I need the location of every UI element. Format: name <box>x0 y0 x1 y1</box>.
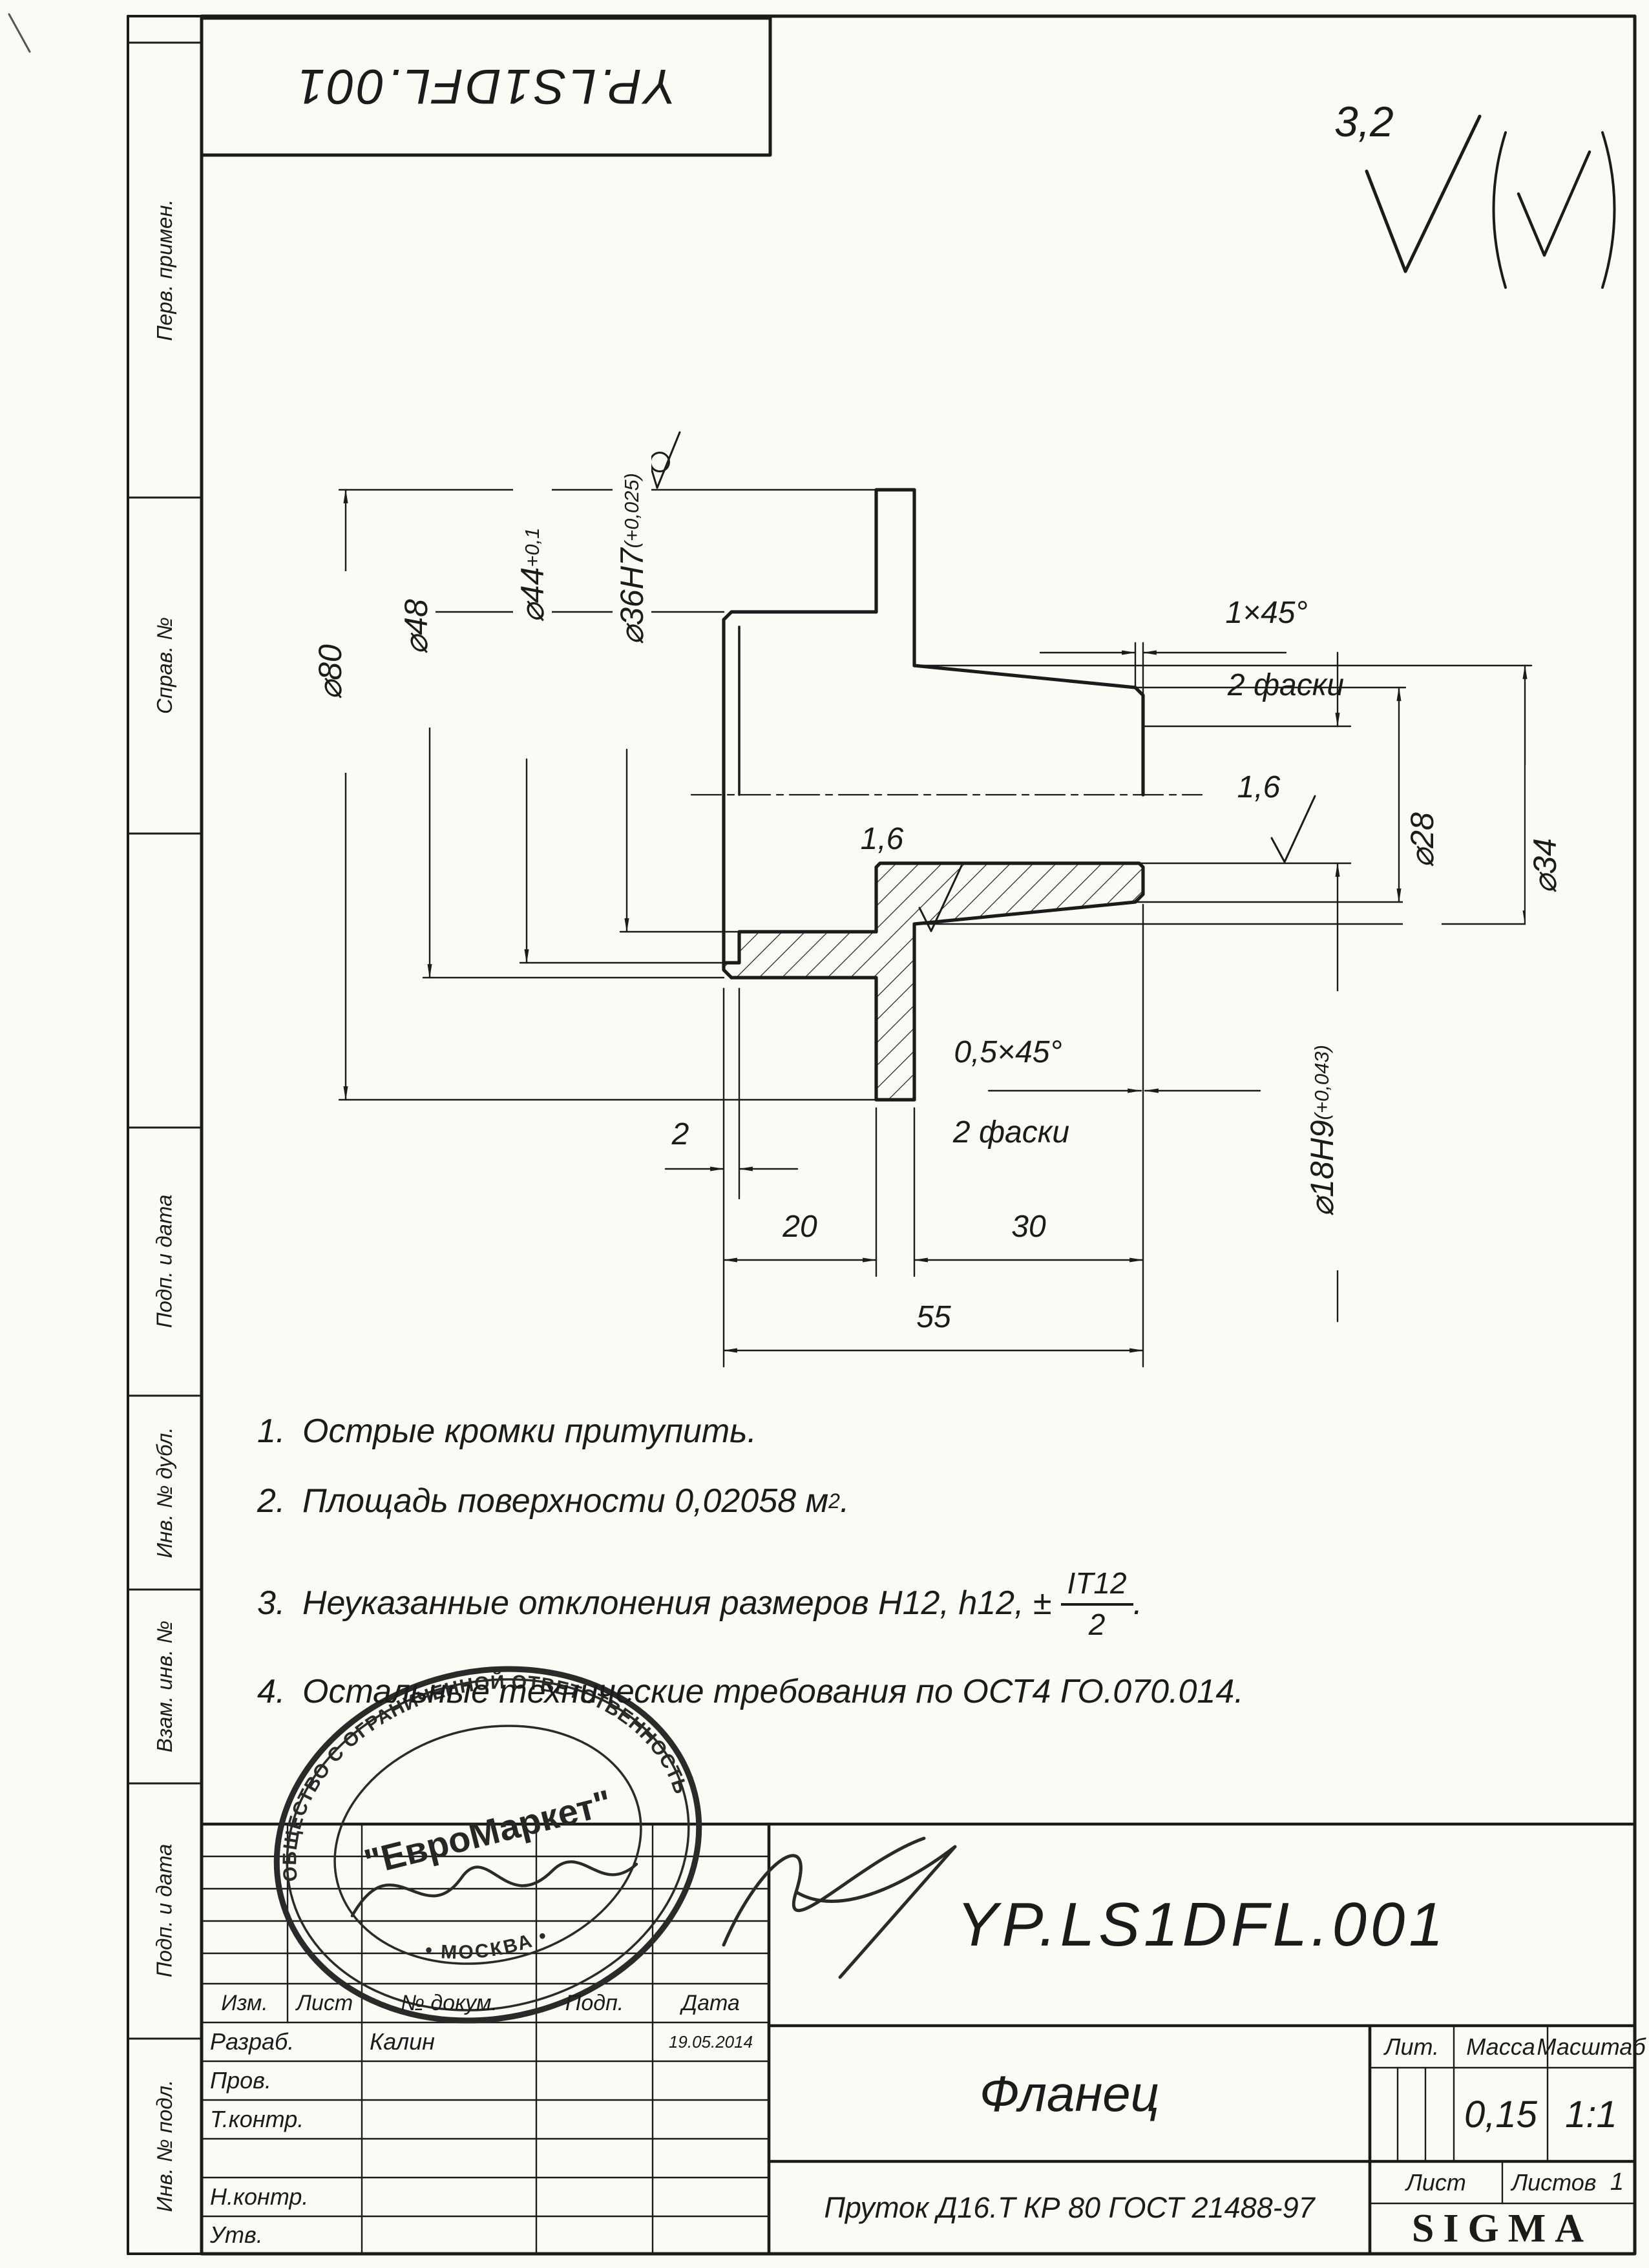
titleblock-lit-label: Лит. <box>1370 2026 1454 2068</box>
tech-req-3: 3. Неуказанные отклонения размеров H12, … <box>257 1567 1549 1639</box>
fraction-denominator: 2 <box>1089 1606 1106 1639</box>
tech-req-2-number: 2. <box>257 1482 302 1520</box>
tech-req-1-text: Острые кромки притупить. <box>302 1412 757 1451</box>
dim-len20: 20 <box>751 1207 848 1246</box>
dim-d44-tolerance: +0,1 <box>521 528 544 567</box>
titleblock-material: Пруток Д16.Т КР 80 ГОСТ 21488-97 <box>769 2161 1370 2254</box>
dim-d44: ⌀44+0,1 <box>513 474 552 676</box>
dim-d28-text: ⌀28 <box>1403 812 1441 868</box>
general-roughness-value: 3,2 <box>1334 97 1394 146</box>
tech-req-2: 2. Площадь поверхности 0,02058 м2. <box>257 1482 1549 1520</box>
titleblock-col-podp: Подп. <box>536 1984 653 2022</box>
dim-len2: 2 <box>648 1115 713 1153</box>
dim-chamfer-outer: 1×45° <box>1170 593 1363 632</box>
dim-d36: ⌀36H7(+0,025) <box>613 432 651 686</box>
titleblock-razrab-date: 19.05.2014 <box>653 2022 769 2061</box>
margin-label-perv-primen: Перв. примен. <box>128 44 202 496</box>
tech-req-2-text: Площадь поверхности 0,02058 м <box>302 1482 828 1520</box>
dim-chamfer-hole: 0,5×45° <box>911 1033 1105 1071</box>
titleblock-row-utv: Утв. <box>210 2216 362 2254</box>
titleblock-company: SIGMA <box>1370 2203 1635 2254</box>
dim-len30: 30 <box>980 1207 1077 1246</box>
tech-req-1: 1. Острые кромки притупить. <box>257 1412 1549 1451</box>
general-roughness-icons <box>1367 116 1615 288</box>
titleblock-row-nkontr: Н.контр. <box>210 2178 362 2216</box>
tech-req-3-text: Неуказанные отклонения размеров H12, h12… <box>302 1584 1052 1622</box>
dim-d48: ⌀48 <box>397 526 436 728</box>
titleblock-scale-label: Масштаб <box>1548 2026 1635 2068</box>
scan-artifact-mark <box>9 14 30 52</box>
titleblock-sheets-value: 1 <box>1599 2161 1635 2203</box>
designation-flipped: YP.LS1DFL.001 <box>208 25 764 149</box>
titleblock-part-name: Фланец <box>769 2026 1370 2161</box>
dim-d48-text: ⌀48 <box>397 599 435 655</box>
roughness-bore-value: 1,6 <box>843 819 921 858</box>
tech-req-3-period: . <box>1133 1584 1142 1622</box>
dim-d18-text: ⌀18H9 <box>1303 1120 1341 1217</box>
titleblock-sheets-label: Листов <box>1509 2161 1599 2203</box>
flange-outline <box>724 490 1143 1100</box>
drawing-sheet: ОБЩЕСТВО С ОГРАНИЧЕННОЙ ОТВЕТСТВЕННОСТЬЮ… <box>0 0 1649 2268</box>
tech-req-4-text: Остальные технические требования по ОСТ4… <box>302 1672 1244 1711</box>
dim-d36-text: ⌀36H7 <box>613 548 651 645</box>
margin-label-sprav-no: Справ. № <box>128 498 202 834</box>
titleblock-col-doc: № докум. <box>362 1984 536 2022</box>
titleblock-mass-label: Масса <box>1454 2026 1548 2068</box>
fraction-numerator: IT12 <box>1061 1567 1133 1606</box>
titleblock-col-izm: Изм. <box>202 1984 288 2022</box>
dim-d36-tolerance: (+0,025) <box>620 473 644 548</box>
tech-req-4-number: 4. <box>257 1672 302 1711</box>
titleblock-designation: YP.LS1DFL.001 <box>769 1824 1635 2026</box>
titleblock-mass-value: 0,15 <box>1454 2068 1548 2161</box>
tech-req-1-number: 1. <box>257 1412 302 1451</box>
dim-len55: 55 <box>885 1297 982 1336</box>
titleblock-row-tkontr: Т.контр. <box>210 2100 362 2139</box>
dim-d34-text: ⌀34 <box>1526 838 1564 894</box>
dim-d28: ⌀28 <box>1403 739 1442 941</box>
titleblock-col-list: Лист <box>288 1984 362 2022</box>
dim-d34: ⌀34 <box>1526 765 1564 967</box>
tech-req-3-number: 3. <box>257 1584 302 1622</box>
dim-chamfer-outer-note: 2 фаски <box>1182 666 1389 704</box>
dim-d80-text: ⌀80 <box>311 644 349 700</box>
titleblock-sheet-label: Лист <box>1370 2161 1502 2203</box>
dim-d18: ⌀18H9(+0,043) <box>1303 991 1341 1270</box>
tech-req-2-superscript: 2 <box>828 1489 840 1513</box>
titleblock-row-prov: Пров. <box>210 2061 362 2100</box>
titleblock-scale-value: 1:1 <box>1548 2068 1635 2161</box>
tech-req-3-fraction: IT12 2 <box>1061 1567 1133 1639</box>
margin-label-inv-no-podl: Инв. № подл. <box>128 2039 202 2253</box>
dim-d80: ⌀80 <box>311 571 350 773</box>
dim-d18-tolerance: (+0,043) <box>1310 1045 1334 1120</box>
tech-req-4: 4. Остальные технические требования по О… <box>257 1672 1549 1711</box>
dim-chamfer-hole-note: 2 фаски <box>908 1113 1115 1151</box>
margin-label-inv-no-dubl: Инв. № дубл. <box>128 1396 202 1590</box>
margin-label-podp-i-data-1: Подп. и дата <box>128 1128 202 1396</box>
titleblock-row-razrab: Разраб. <box>210 2022 362 2061</box>
titleblock-col-date: Дата <box>653 1984 769 2022</box>
dim-d44-text: ⌀44 <box>514 567 551 623</box>
margin-label-podp-i-data-2: Подп. и дата <box>128 1783 202 2039</box>
titleblock-razrab-name: Калин <box>362 2022 544 2061</box>
margin-label-vzam-inv-no: Взам. инв. № <box>128 1590 202 1783</box>
tech-req-2-period: . <box>840 1482 849 1520</box>
roughness-hole-value: 1,6 <box>1220 768 1297 806</box>
